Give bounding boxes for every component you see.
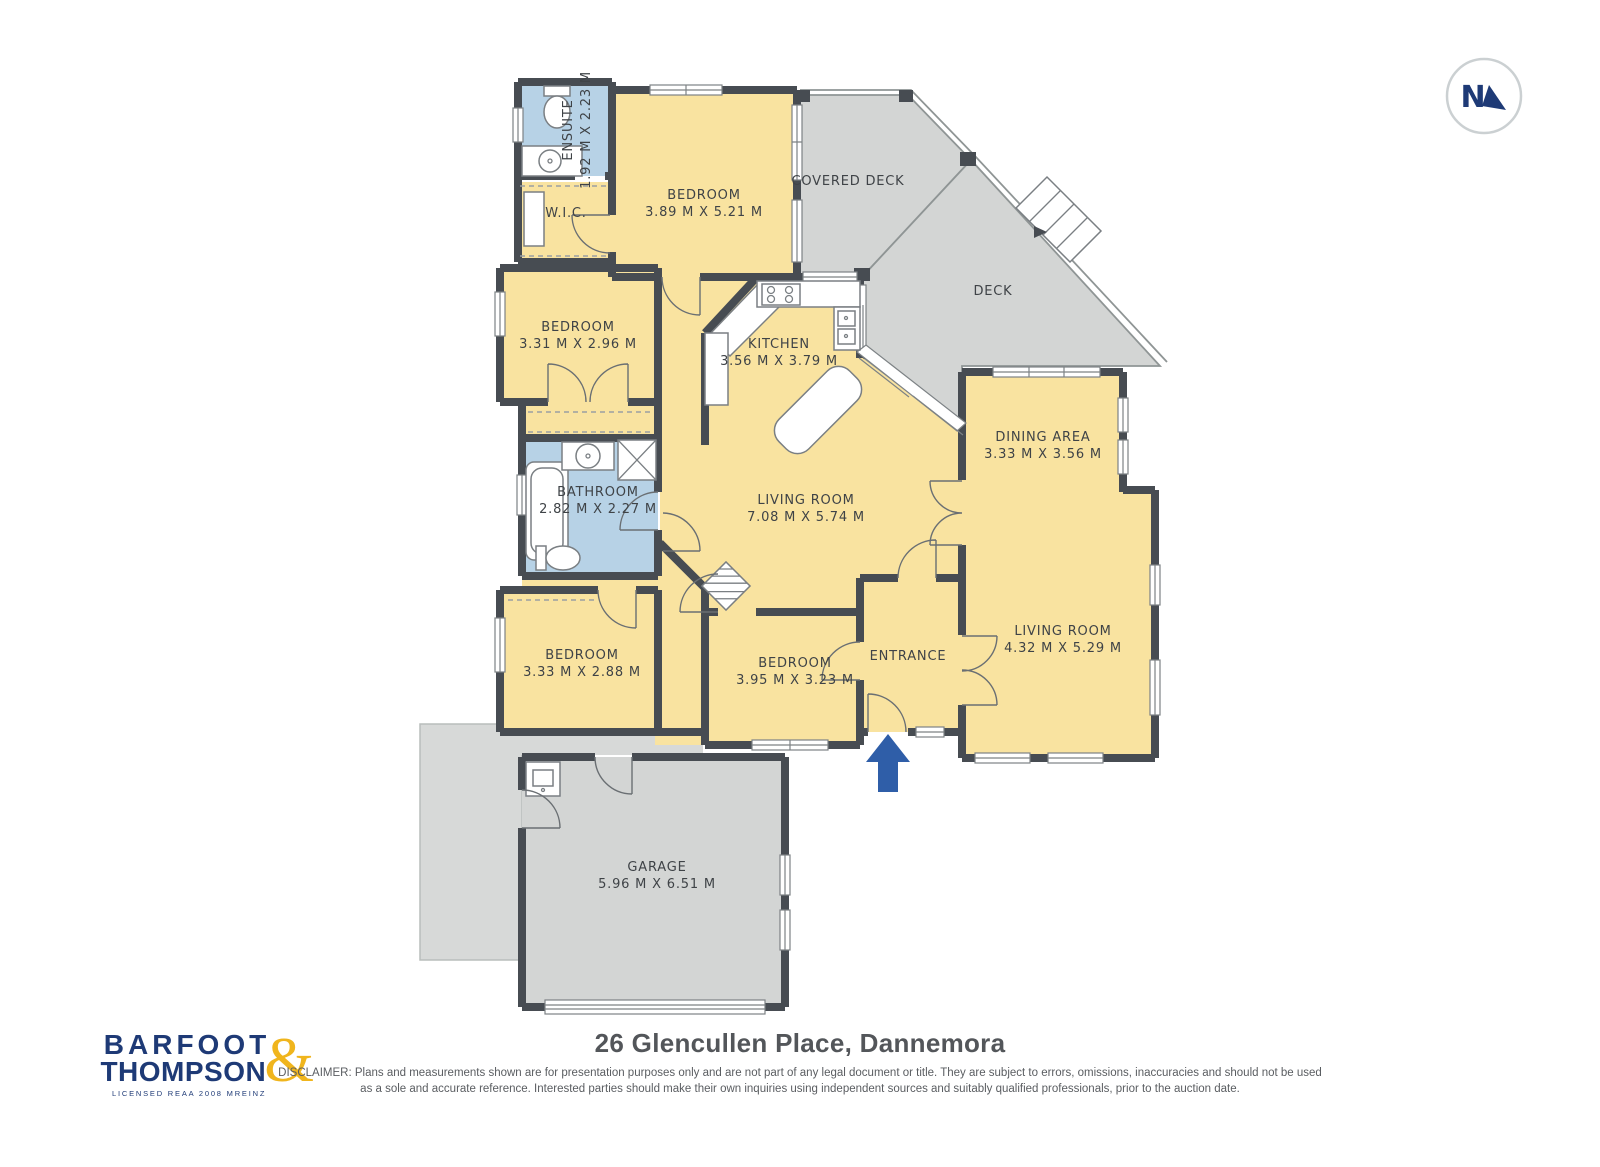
room-bedroom-south-label: BEDROOM [758,656,831,671]
room-garage-dims: 5.96 M X 6.51 M [598,877,716,892]
room-kitchen-label: KITCHEN [748,337,810,352]
room-wic-label: W.I.C. [545,206,586,221]
room-garage-label: GARAGE [627,860,686,875]
deck-corner [960,152,976,166]
room-living-main-label: LIVING ROOM [757,493,854,508]
room-bedroom-sw-dims: 3.33 M X 2.88 M [523,665,641,680]
room-ensuite-label: ENSUITE [561,99,576,160]
room-living-main-dims: 7.08 M X 5.74 M [747,510,865,525]
bedroom-top-area [612,90,797,277]
room-bedroom-left-label: BEDROOM [541,320,614,335]
wic-shelf [524,192,544,246]
bedroom-left-area [500,268,658,402]
compass: N [1447,59,1521,133]
patio-area [420,724,522,960]
room-dining-dims: 3.33 M X 3.56 M [984,447,1102,462]
room-deck-label: DECK [973,284,1012,299]
room-entrance-label: ENTRANCE [870,649,947,664]
floorplan-drawing: ENSUITE 1.92 M X 2.23 M W.I.C. BEDROOM 3… [0,0,1600,1167]
entry-arrow-icon [866,734,910,792]
room-bathroom-label: BATHROOM [557,485,639,500]
page-title: 26 Glencullen Place, Dannemora [0,1028,1600,1059]
room-bedroom-south-dims: 3.95 M X 3.23 M [736,673,854,688]
deck-corner [899,90,913,102]
compass-north-label: N [1460,80,1485,115]
room-bedroom-top-label: BEDROOM [667,188,740,203]
disclaimer-line1: DISCLAIMER: Plans and measurements shown… [278,1067,1322,1079]
room-ensuite-dims: 1.92 M X 2.23 M [579,71,594,189]
disclaimer-line2: as a sole and accurate reference. Intere… [360,1083,1240,1095]
floorplan-page: ENSUITE 1.92 M X 2.23 M W.I.C. BEDROOM 3… [0,0,1600,1167]
room-bedroom-top-dims: 3.89 M X 5.21 M [645,205,763,220]
room-bathroom-dims: 2.82 M X 2.27 M [539,502,657,517]
room-living-second-label: LIVING ROOM [1014,624,1111,639]
room-bedroom-sw-label: BEDROOM [545,648,618,663]
room-kitchen-dims: 3.56 M X 3.79 M [720,354,838,369]
hall-south-area [655,543,705,745]
room-bedroom-left-dims: 3.31 M X 2.96 M [519,337,637,352]
room-covered-deck-label: COVERED DECK [791,174,904,189]
room-dining-label: DINING AREA [995,430,1090,445]
room-living-second-dims: 4.32 M X 5.29 M [1004,641,1122,656]
disclaimer: DISCLAIMER: Plans and measurements shown… [0,1066,1600,1097]
